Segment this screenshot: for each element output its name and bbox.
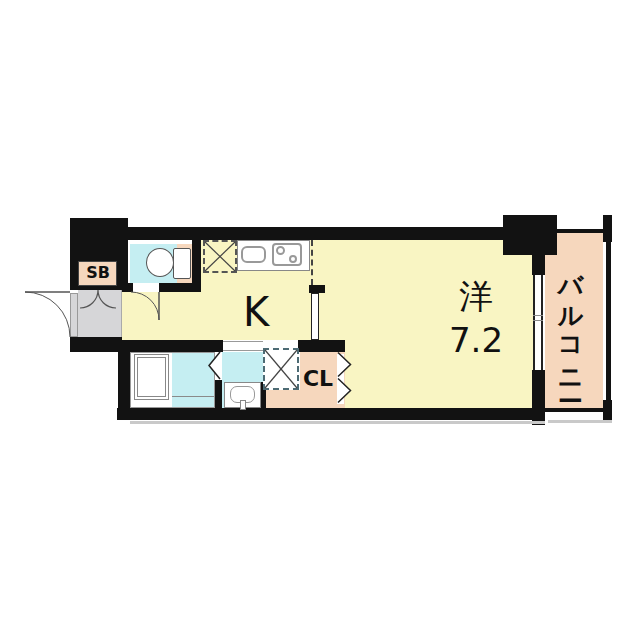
shadow-balcony [548,420,612,423]
balcony-rail-line [606,242,611,400]
stove-burner-large [276,246,285,255]
entrance-door-arc-icon [25,292,70,337]
balcony-bottom-line [545,408,607,412]
wall-bottom [117,408,545,420]
pillar-stub [532,255,545,275]
floorplan-canvas: SB K 洋 7.2 CL バルコニー [0,0,640,640]
pillar-top-right [503,215,557,255]
western-room-size: 7.2 [416,318,536,362]
western-room-type: 洋 [416,274,536,318]
wall-left-bathroom [118,345,130,420]
stove-burner-small [289,255,297,263]
western-room-label: 洋 7.2 [416,274,536,362]
wall-partition-lower-chunk [307,340,327,352]
wall-top [122,227,503,240]
sliding-door-leaf-icon [311,293,319,340]
wall-toilet-right [192,239,201,292]
washroom-door-gap [223,341,263,351]
balcony-top-line [557,229,603,233]
balcony-label: バルコニー [553,240,583,408]
shadow-bottom [130,421,545,424]
toilet-tank [173,248,191,279]
balcony-rail-top-block [603,215,612,242]
bathroom-drain-line [172,396,214,397]
washer-space-x-icon [263,348,299,390]
overhead-beam-dashed-line [311,240,313,285]
refrigerator-space-x-icon [203,240,237,273]
entrance-sill [70,293,78,337]
wall-wash-bath-stub [215,380,222,408]
kitchen-label: K [226,292,286,332]
kitchen-sink-icon [241,246,266,263]
closet-door-strip [337,354,344,404]
wall-partition-upper-chunk [309,285,325,293]
toilet-door-gap [133,283,159,292]
bathtub-inner [137,357,166,397]
toilet-icon [146,248,174,277]
bathtub-icon [134,354,169,400]
bathroom-wet-floor [172,353,214,407]
entrance-genkan-floor [78,290,122,337]
wall-bath-top [115,340,223,352]
closet-label: CL [300,368,336,390]
shoe-box-label: SB [79,265,117,281]
washbasin-tap [240,400,246,410]
